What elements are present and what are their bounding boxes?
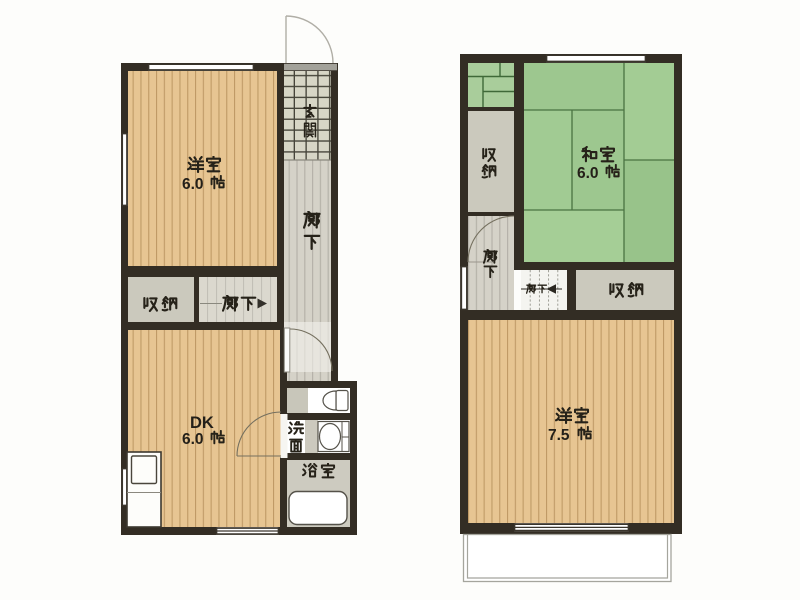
svg-text:DK: DK — [190, 414, 214, 432]
svg-text:7.5: 7.5 — [548, 427, 570, 444]
svg-text:6.0: 6.0 — [182, 431, 204, 448]
svg-text:6.0: 6.0 — [577, 165, 599, 182]
svg-text:6.0: 6.0 — [182, 176, 204, 193]
